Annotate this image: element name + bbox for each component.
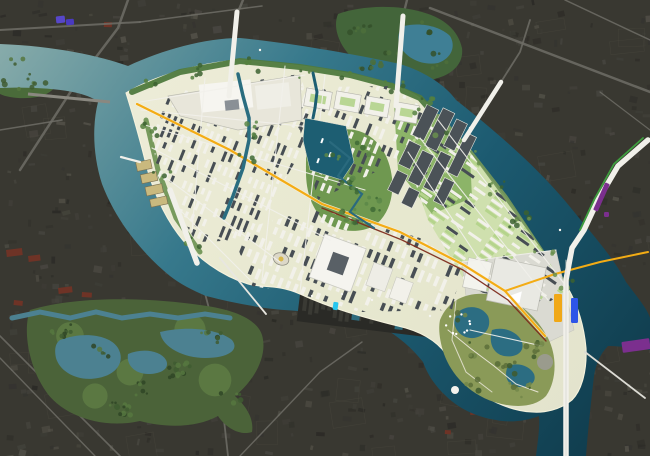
tree-canopy xyxy=(515,216,520,221)
city-texture xyxy=(109,214,111,216)
city-texture xyxy=(623,392,627,395)
perimeter-block xyxy=(364,96,391,118)
city-texture xyxy=(18,158,21,162)
park-canopy xyxy=(82,383,107,408)
triangle-roof-2 xyxy=(255,82,291,109)
tree-canopy xyxy=(570,279,574,283)
tree-canopy xyxy=(524,210,529,215)
city-texture xyxy=(159,15,164,17)
city-texture xyxy=(55,207,58,211)
tree-canopy xyxy=(28,73,31,76)
city-texture xyxy=(585,180,591,184)
tree-canopy xyxy=(488,192,493,197)
tip-pavilion xyxy=(469,323,471,325)
city-texture xyxy=(52,211,60,214)
tree-canopy xyxy=(495,361,501,367)
tree-canopy xyxy=(366,152,372,158)
tree-canopy xyxy=(427,30,433,36)
masterplan-map: Aerial masterplan rendering of a river-i… xyxy=(0,0,650,456)
city-texture xyxy=(38,231,45,235)
city-texture xyxy=(28,163,35,166)
city-texture xyxy=(33,270,36,274)
city-texture xyxy=(554,40,557,47)
tree-canopy xyxy=(464,382,468,386)
tree-canopy xyxy=(142,121,146,125)
city-texture xyxy=(88,226,93,230)
tree-canopy xyxy=(365,202,369,206)
tree-canopy xyxy=(340,180,345,185)
tree-canopy xyxy=(13,62,16,65)
tree-canopy xyxy=(197,244,202,249)
tip-pavilion xyxy=(455,333,457,335)
tree-canopy xyxy=(206,330,211,335)
city-texture xyxy=(360,445,366,452)
tree-canopy xyxy=(427,100,433,106)
tree-canopy xyxy=(2,81,8,87)
city-texture xyxy=(645,15,650,22)
city-texture xyxy=(514,76,518,80)
tree-canopy xyxy=(9,57,13,61)
city-texture xyxy=(646,236,650,243)
tree-canopy xyxy=(468,341,471,344)
perimeter-block xyxy=(334,91,362,113)
city-texture xyxy=(534,102,543,107)
city-texture xyxy=(115,36,118,39)
tree-canopy xyxy=(298,77,300,79)
tree-canopy xyxy=(69,330,73,334)
city-texture xyxy=(189,12,194,14)
tree-canopy xyxy=(431,51,437,57)
city-texture xyxy=(21,389,27,393)
city-texture xyxy=(605,391,612,397)
tip-pavilion xyxy=(466,329,468,331)
city-texture xyxy=(51,298,59,303)
tree-canopy xyxy=(508,382,511,385)
violet-roof-marker xyxy=(56,16,66,24)
tree-canopy xyxy=(175,372,181,378)
city-texture xyxy=(488,77,494,81)
city-texture xyxy=(354,386,359,392)
city-texture xyxy=(343,416,352,422)
tree-canopy xyxy=(33,81,37,85)
tree-canopy xyxy=(175,363,180,368)
tip-pavilion xyxy=(463,331,465,333)
tree-canopy xyxy=(513,360,517,364)
city-texture xyxy=(480,51,484,55)
city-texture xyxy=(305,401,312,408)
tree-canopy xyxy=(109,404,112,407)
tree-canopy xyxy=(512,371,518,377)
tree-canopy xyxy=(401,80,404,83)
city-texture xyxy=(22,41,28,44)
tree-canopy xyxy=(237,153,241,157)
tree-canopy xyxy=(360,66,365,71)
tree-canopy xyxy=(390,83,395,88)
city-texture xyxy=(418,363,423,368)
tree-canopy xyxy=(520,396,523,399)
tree-canopy xyxy=(455,310,461,316)
city-texture xyxy=(502,29,504,31)
city-texture xyxy=(295,340,303,348)
city-texture xyxy=(31,106,38,113)
tree-canopy xyxy=(114,404,120,410)
city-texture xyxy=(625,446,629,452)
tree-canopy xyxy=(469,353,473,357)
tree-canopy xyxy=(347,29,353,35)
tree-canopy xyxy=(528,382,531,385)
tree-canopy xyxy=(523,343,529,349)
tree-canopy xyxy=(350,175,356,181)
red-roof-block xyxy=(82,292,92,298)
tree-canopy xyxy=(532,354,537,359)
city-texture xyxy=(572,147,577,150)
tree-canopy xyxy=(417,107,421,111)
boat-speck xyxy=(259,49,261,51)
red-roof-block xyxy=(445,430,451,434)
city-texture xyxy=(489,449,496,453)
city-texture xyxy=(51,275,54,277)
city-texture xyxy=(45,35,52,37)
tree-canopy xyxy=(162,173,167,178)
tree-canopy xyxy=(420,20,424,24)
tip-pavilion xyxy=(452,332,454,334)
city-texture xyxy=(391,412,396,417)
tree-canopy xyxy=(514,223,520,229)
tree-canopy xyxy=(91,344,96,349)
city-texture xyxy=(15,311,19,314)
tree-canopy xyxy=(253,125,257,129)
tree-canopy xyxy=(231,400,236,405)
tree-canopy xyxy=(52,332,55,335)
tree-canopy xyxy=(477,161,481,165)
city-texture xyxy=(323,22,331,27)
city-texture xyxy=(8,240,17,243)
city-texture xyxy=(522,85,530,91)
city-texture xyxy=(88,215,91,218)
city-texture xyxy=(67,174,72,176)
tree-canopy xyxy=(353,208,356,211)
tree-canopy xyxy=(401,84,406,89)
tree-canopy xyxy=(200,332,203,335)
city-texture xyxy=(118,262,121,266)
tree-canopy xyxy=(378,209,381,212)
city-texture xyxy=(183,24,187,29)
tree-canopy xyxy=(474,150,477,153)
city-texture xyxy=(377,383,382,389)
tip-pavilion xyxy=(445,324,447,326)
tree-canopy xyxy=(421,97,424,100)
city-texture xyxy=(487,5,495,10)
city-texture xyxy=(41,283,47,289)
city-texture xyxy=(563,151,566,155)
tree-canopy xyxy=(248,60,252,64)
city-texture xyxy=(213,26,222,34)
tree-canopy xyxy=(463,313,468,318)
city-texture xyxy=(290,320,293,325)
tree-canopy xyxy=(299,69,302,72)
city-texture xyxy=(79,432,84,437)
tip-pavilion xyxy=(468,320,470,322)
city-texture xyxy=(580,150,585,156)
city-texture xyxy=(282,352,285,356)
tree-canopy xyxy=(169,170,173,174)
tree-canopy xyxy=(508,225,511,228)
city-texture xyxy=(595,385,601,390)
tree-canopy xyxy=(356,26,360,30)
tree-canopy xyxy=(21,57,26,62)
city-texture xyxy=(168,281,176,286)
tree-canopy xyxy=(146,392,148,394)
boat-speck xyxy=(371,299,373,301)
city-texture xyxy=(615,380,620,382)
city-texture xyxy=(8,200,12,206)
tree-canopy xyxy=(370,59,376,65)
city-texture xyxy=(644,384,647,388)
tree-canopy xyxy=(507,363,512,368)
tree-canopy xyxy=(26,77,29,80)
city-texture xyxy=(100,247,107,252)
city-texture xyxy=(148,440,151,443)
city-texture xyxy=(137,426,141,429)
city-texture xyxy=(65,244,71,249)
tree-canopy xyxy=(149,129,154,134)
tree-canopy xyxy=(355,141,360,146)
city-texture xyxy=(51,257,55,264)
tree-canopy xyxy=(367,196,371,200)
city-texture xyxy=(65,284,69,287)
city-texture xyxy=(208,448,214,455)
tree-canopy xyxy=(114,401,117,404)
tree-canopy xyxy=(188,364,192,368)
city-texture xyxy=(459,82,465,88)
city-texture xyxy=(389,435,394,440)
tree-canopy xyxy=(339,75,344,80)
city-texture xyxy=(470,1,477,6)
city-texture xyxy=(638,445,646,450)
tip-white-building xyxy=(451,386,459,394)
tree-canopy xyxy=(527,217,531,221)
tree-canopy xyxy=(244,121,249,126)
city-texture xyxy=(32,385,38,390)
tree-canopy xyxy=(153,126,157,130)
tree-canopy xyxy=(141,380,145,384)
tip-pavilion xyxy=(449,315,451,317)
city-texture xyxy=(83,144,86,147)
tree-canopy xyxy=(503,180,505,182)
tree-canopy xyxy=(256,69,261,74)
city-texture xyxy=(23,151,26,156)
tree-canopy xyxy=(484,344,489,349)
tree-canopy xyxy=(247,56,251,60)
city-texture xyxy=(13,30,22,36)
tree-canopy xyxy=(511,384,517,390)
tree-canopy xyxy=(194,73,198,77)
tree-canopy xyxy=(550,252,554,256)
city-texture xyxy=(635,59,640,62)
tree-canopy xyxy=(106,354,111,359)
city-texture xyxy=(471,107,479,114)
boat-speck xyxy=(559,229,561,231)
tree-canopy xyxy=(252,132,256,136)
city-texture xyxy=(264,358,273,362)
city-texture xyxy=(76,444,81,448)
tree-canopy xyxy=(361,28,367,34)
city-texture xyxy=(306,33,312,40)
tree-canopy xyxy=(148,82,153,87)
tree-canopy xyxy=(219,331,223,335)
tree-canopy xyxy=(553,273,558,278)
city-texture xyxy=(569,86,577,89)
city-texture xyxy=(120,55,129,61)
tree-canopy xyxy=(138,382,142,386)
tree-canopy xyxy=(141,389,146,394)
city-texture xyxy=(292,17,295,22)
city-texture xyxy=(39,276,41,279)
tip-gray-mound xyxy=(537,354,553,370)
city-texture xyxy=(316,432,325,436)
tree-canopy xyxy=(190,76,194,80)
city-texture xyxy=(111,265,116,272)
tree-canopy xyxy=(215,336,220,341)
city-texture xyxy=(50,446,54,450)
city-texture xyxy=(156,449,164,453)
tree-canopy xyxy=(370,207,375,212)
tree-canopy xyxy=(500,185,504,189)
city-texture xyxy=(10,329,18,335)
tree-canopy xyxy=(389,89,394,94)
tree-canopy xyxy=(438,52,441,55)
city-texture xyxy=(383,403,386,406)
city-texture xyxy=(310,357,313,362)
tree-canopy xyxy=(490,182,493,185)
tree-canopy xyxy=(432,132,438,138)
city-texture xyxy=(509,30,515,35)
tree-canopy xyxy=(238,393,241,396)
tree-canopy xyxy=(377,198,383,204)
tree-canopy xyxy=(338,210,343,215)
city-texture xyxy=(93,265,102,273)
city-texture xyxy=(406,394,412,398)
tree-canopy xyxy=(529,387,531,389)
city-texture xyxy=(393,398,398,403)
city-texture xyxy=(643,262,646,265)
city-texture xyxy=(117,47,123,50)
tree-canopy xyxy=(152,171,155,174)
city-texture xyxy=(38,0,44,7)
tree-canopy xyxy=(533,250,536,253)
city-texture xyxy=(183,29,187,32)
tree-canopy xyxy=(122,405,125,408)
tree-canopy xyxy=(362,24,365,27)
city-texture xyxy=(28,220,31,227)
city-texture xyxy=(371,382,376,388)
park-canopy xyxy=(199,364,232,397)
city-texture xyxy=(4,244,9,248)
tree-canopy xyxy=(436,64,439,67)
tree-canopy xyxy=(352,220,357,225)
tree-canopy xyxy=(444,130,449,135)
tree-canopy xyxy=(343,219,346,222)
tree-canopy xyxy=(255,121,258,124)
tree-canopy xyxy=(111,401,113,403)
city-texture xyxy=(643,114,650,117)
tree-canopy xyxy=(251,159,256,164)
city-texture xyxy=(632,211,641,217)
tree-canopy xyxy=(308,71,311,74)
city-texture xyxy=(589,196,593,199)
city-texture xyxy=(113,16,121,19)
tree-canopy xyxy=(235,392,238,395)
city-texture xyxy=(598,368,602,370)
tree-canopy xyxy=(238,397,244,403)
tree-canopy xyxy=(412,110,417,115)
red-roof-block xyxy=(13,300,22,306)
tree-canopy xyxy=(43,80,49,86)
tree-canopy xyxy=(324,153,328,157)
tree-canopy xyxy=(455,318,460,323)
tree-canopy xyxy=(118,412,122,416)
tree-canopy xyxy=(198,63,203,68)
city-texture xyxy=(9,384,17,390)
city-texture xyxy=(465,439,471,445)
tree-canopy xyxy=(59,334,64,339)
tree-canopy xyxy=(125,407,129,411)
tree-canopy xyxy=(368,144,372,148)
tree-canopy xyxy=(369,66,373,70)
tree-canopy xyxy=(444,60,448,64)
city-texture xyxy=(52,284,59,289)
tree-canopy xyxy=(216,341,220,345)
city-texture xyxy=(127,42,129,45)
tree-canopy xyxy=(475,388,481,394)
city-texture xyxy=(289,422,295,428)
tree-canopy xyxy=(97,347,102,352)
venue-center xyxy=(279,257,284,262)
city-texture xyxy=(89,14,93,17)
city-texture xyxy=(632,106,637,110)
tree-canopy xyxy=(181,371,185,375)
tree-canopy xyxy=(468,383,473,388)
boat-speck xyxy=(341,293,343,295)
orange-zone-marker xyxy=(554,294,562,322)
blue-zone-marker xyxy=(571,298,578,323)
tree-canopy xyxy=(167,366,171,370)
city-texture xyxy=(363,368,368,371)
city-texture xyxy=(109,275,113,278)
tree-canopy xyxy=(489,185,491,187)
tree-canopy xyxy=(144,79,148,83)
tree-canopy xyxy=(510,219,516,225)
tree-canopy xyxy=(559,286,564,291)
tree-canopy xyxy=(360,145,366,151)
city-texture xyxy=(279,19,282,22)
tree-canopy xyxy=(378,62,384,68)
tree-canopy xyxy=(353,26,356,29)
city-texture xyxy=(271,310,279,315)
tree-canopy xyxy=(196,67,199,70)
tree-canopy xyxy=(355,188,359,192)
city-texture xyxy=(59,199,65,203)
city-texture xyxy=(196,451,199,455)
tree-canopy xyxy=(348,71,352,75)
tree-canopy xyxy=(337,158,340,161)
tree-canopy xyxy=(355,30,358,33)
tree-canopy xyxy=(135,394,138,397)
boat-speck xyxy=(429,315,431,317)
tree-canopy xyxy=(501,365,505,369)
tree-canopy xyxy=(69,323,72,326)
tree-canopy xyxy=(330,152,335,157)
